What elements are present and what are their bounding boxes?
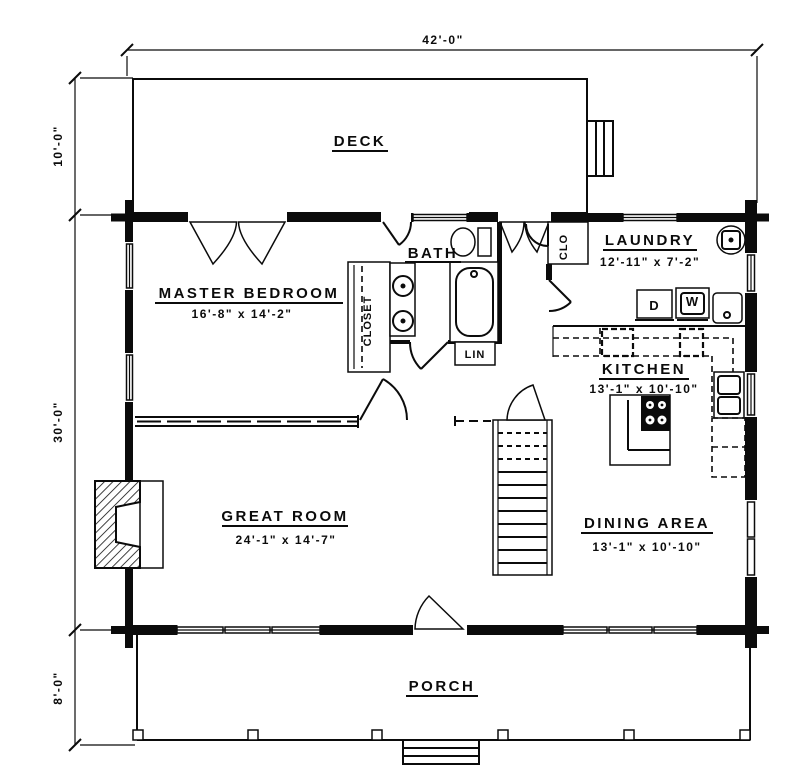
- dining-size: 13'-1" x 10'-10": [592, 540, 701, 554]
- dryer-label: D: [649, 298, 658, 313]
- floorplan-canvas: DECK MASTER BEDROOM 16'-8" x 14'-2" BATH…: [0, 0, 800, 780]
- water-heater: [717, 226, 745, 254]
- porch-steps: [403, 740, 479, 764]
- kitchen-label: KITCHEN: [602, 361, 686, 378]
- porch-outline: [133, 635, 750, 764]
- deck-steps: [587, 121, 613, 176]
- laundry-label: LAUNDRY: [605, 232, 695, 249]
- bath-label: BATH: [408, 245, 459, 262]
- porch-posts: [133, 730, 750, 740]
- master-bedroom-size: 16'-8" x 14'-2": [192, 307, 293, 321]
- bedroom-wall: [135, 415, 358, 428]
- bath-entry-door: [410, 342, 448, 369]
- bedroom-door: [360, 379, 407, 420]
- master-deck-french-doors: [190, 222, 285, 264]
- great-room-window-band: [175, 625, 322, 635]
- master-bedroom-label: MASTER BEDROOM: [159, 285, 340, 302]
- overall-width-dim: 42'-0": [422, 33, 464, 47]
- porch-depth-dim: 8'-0": [51, 671, 65, 704]
- hall-deck-doors: [500, 222, 549, 252]
- laundry-window: [621, 213, 679, 222]
- kitchen-island: [610, 395, 670, 465]
- clo-label: CLO: [558, 234, 570, 260]
- laundry-side-window: [748, 255, 755, 291]
- master-window-1: [127, 244, 133, 288]
- utility-sink: [713, 293, 742, 323]
- stair-door: [507, 385, 545, 420]
- dining-front-window-band: [561, 625, 699, 635]
- great-room-label: GREAT ROOM: [221, 508, 348, 525]
- porch-label: PORCH: [409, 678, 476, 695]
- master-window-2: [127, 355, 133, 400]
- lin-label: LIN: [465, 349, 486, 361]
- kitchen-side-window: [748, 374, 755, 415]
- refrigerator: [712, 418, 745, 477]
- bathtub: [450, 262, 498, 342]
- bath-window: [411, 213, 469, 222]
- stair-railing: [455, 416, 491, 426]
- kitchen-sink: [714, 372, 744, 418]
- front-door: [415, 596, 463, 629]
- deck-label: DECK: [334, 133, 387, 150]
- main-depth-dim: 30'-0": [51, 401, 65, 443]
- laundry-door: [549, 280, 571, 311]
- dining-side-window: [748, 502, 755, 575]
- floor-plan-drawing: DECK MASTER BEDROOM 16'-8" x 14'-2" BATH…: [0, 0, 800, 780]
- bath-vanity: [390, 263, 415, 336]
- closet-label: CLOSET: [362, 296, 374, 347]
- great-room-size: 24'-1" x 14'-7": [236, 533, 337, 547]
- washer-label: W: [686, 294, 699, 309]
- deck-depth-dim: 10'-0": [51, 125, 65, 167]
- bath-deck-side-door: [383, 222, 411, 245]
- dining-label: DINING AREA: [584, 515, 710, 532]
- laundry-size: 12'-11" x 7'-2": [600, 255, 700, 269]
- stairs: [493, 385, 552, 575]
- kitchen-size: 13'-1" x 10'-10": [589, 382, 698, 396]
